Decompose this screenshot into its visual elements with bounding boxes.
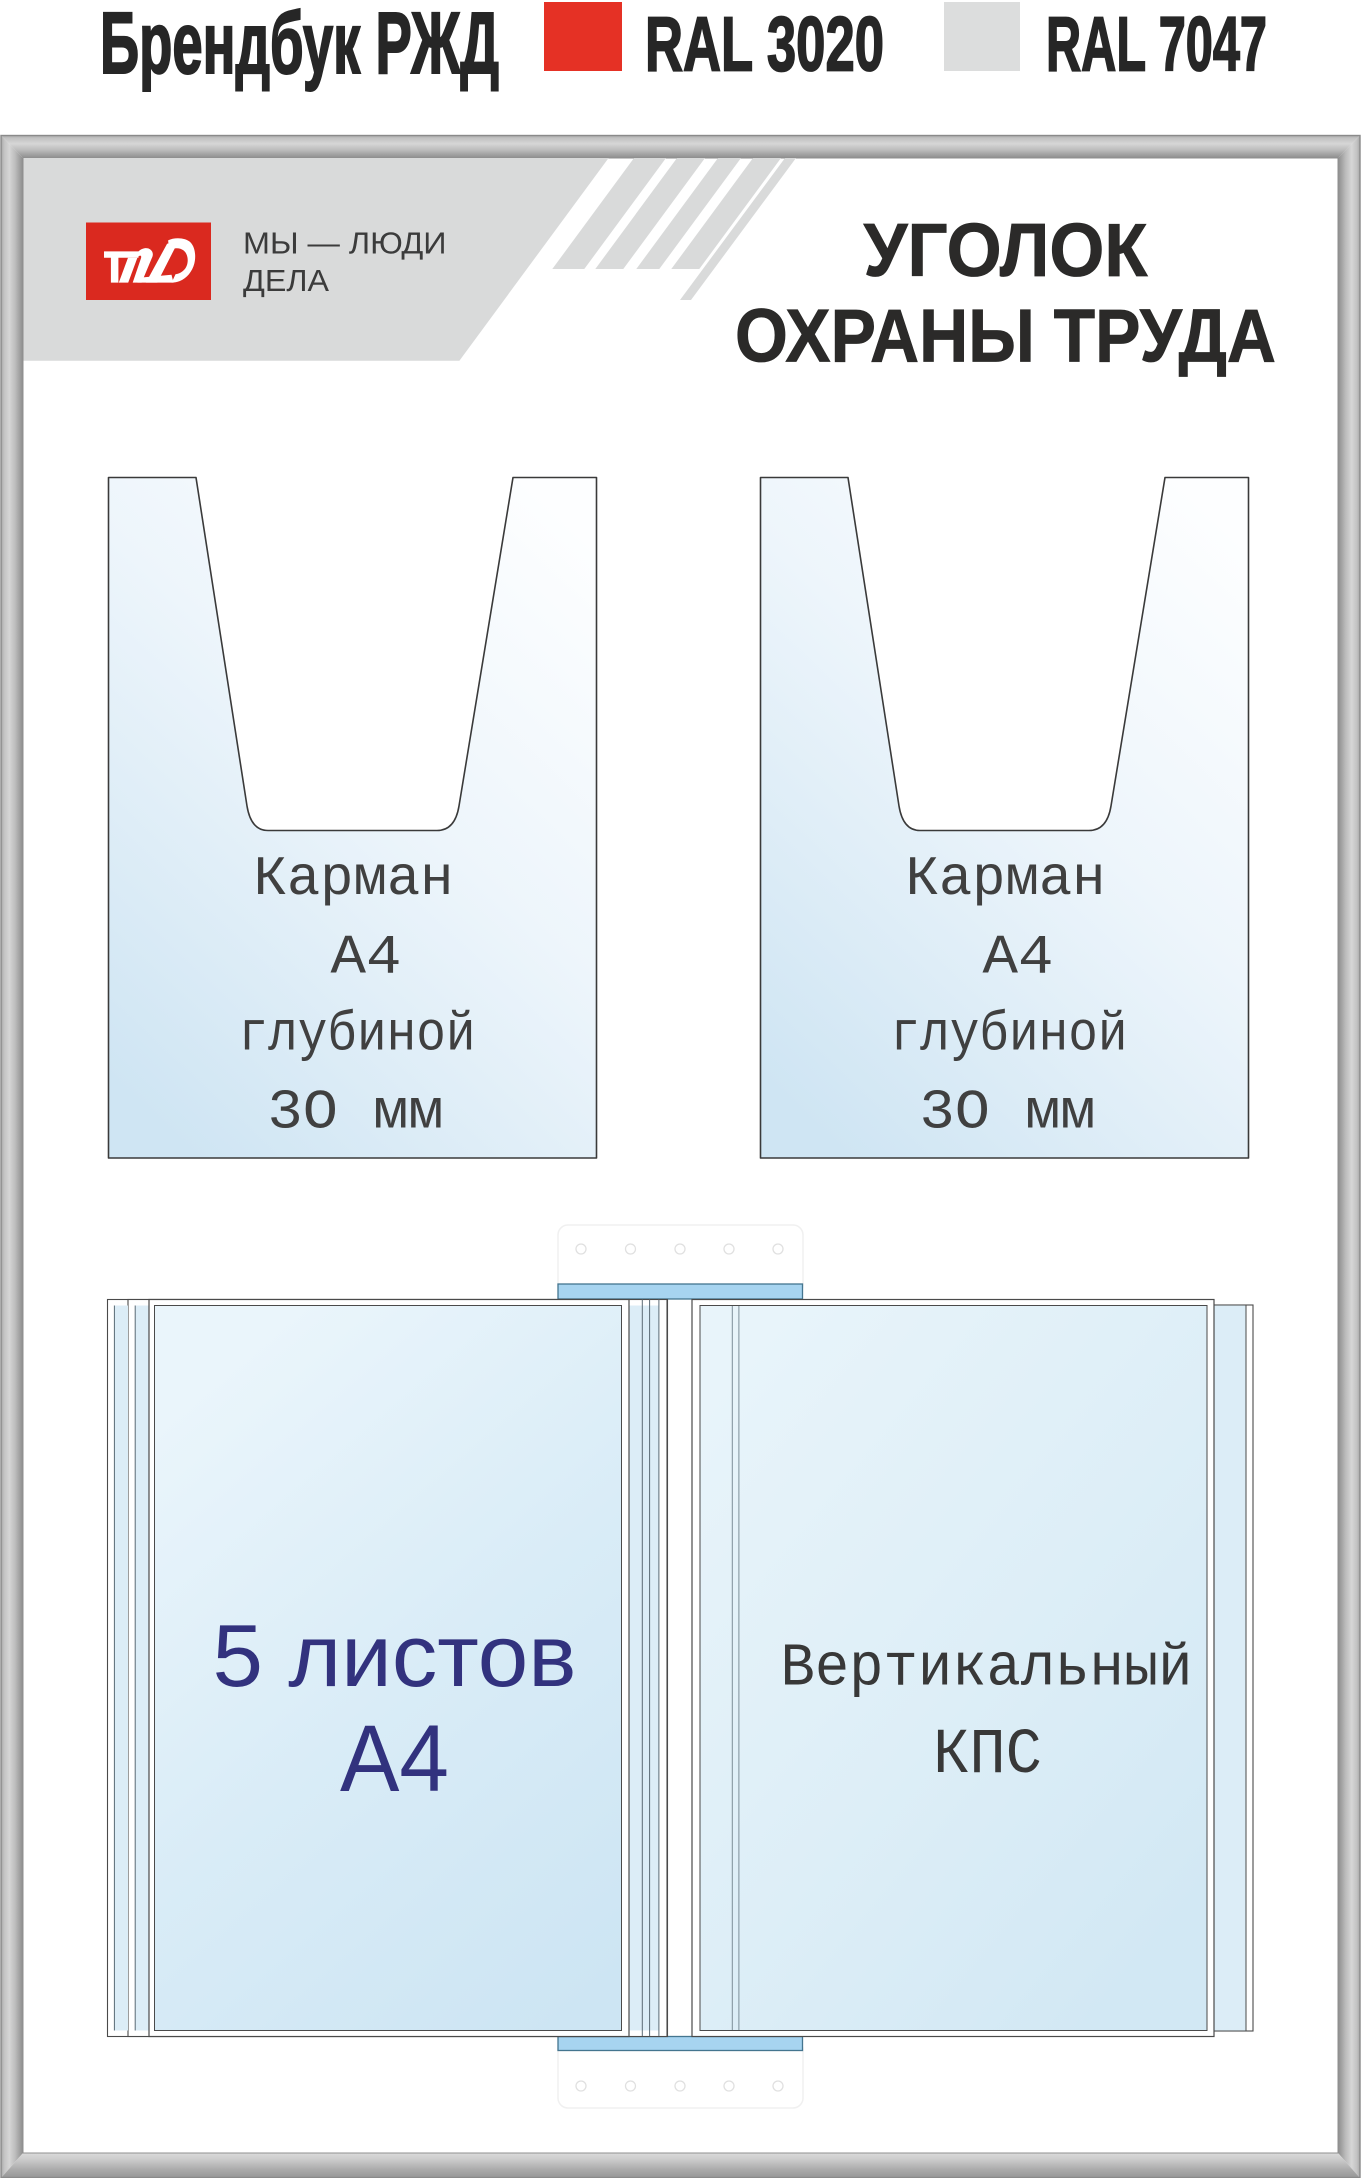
svg-text:А4: А4 [983,926,1054,990]
svg-text:3О мм: 3О мм [268,1081,444,1145]
svg-text:КПС: КПС [933,1720,1042,1792]
svg-text:А4: А4 [340,1706,449,1812]
svg-text:глубиной: глубиной [891,1003,1128,1067]
svg-text:5 листов: 5 листов [213,1606,577,1705]
svg-text:ДЕЛА: ДЕЛА [243,264,330,298]
svg-text:Брендбук РЖД: Брендбук РЖД [100,0,499,92]
svg-text:RAL 7047: RAL 7047 [1046,2,1267,88]
svg-text:А4: А4 [331,926,402,990]
svg-text:Вертикальный: Вертикальный [781,1636,1193,1704]
svg-text:Карман: Карман [906,847,1106,911]
svg-text:Карман: Карман [254,847,454,911]
svg-text:МЫ — ЛЮДИ: МЫ — ЛЮДИ [243,227,447,261]
svg-text:RAL 3020: RAL 3020 [645,2,884,88]
svg-text:УГОЛОК: УГОЛОК [864,208,1148,292]
svg-text:ОХРАНЫ ТРУДА: ОХРАНЫ ТРУДА [735,294,1276,378]
svg-text:глубиной: глубиной [239,1003,476,1067]
svg-text:3О мм: 3О мм [920,1081,1096,1145]
